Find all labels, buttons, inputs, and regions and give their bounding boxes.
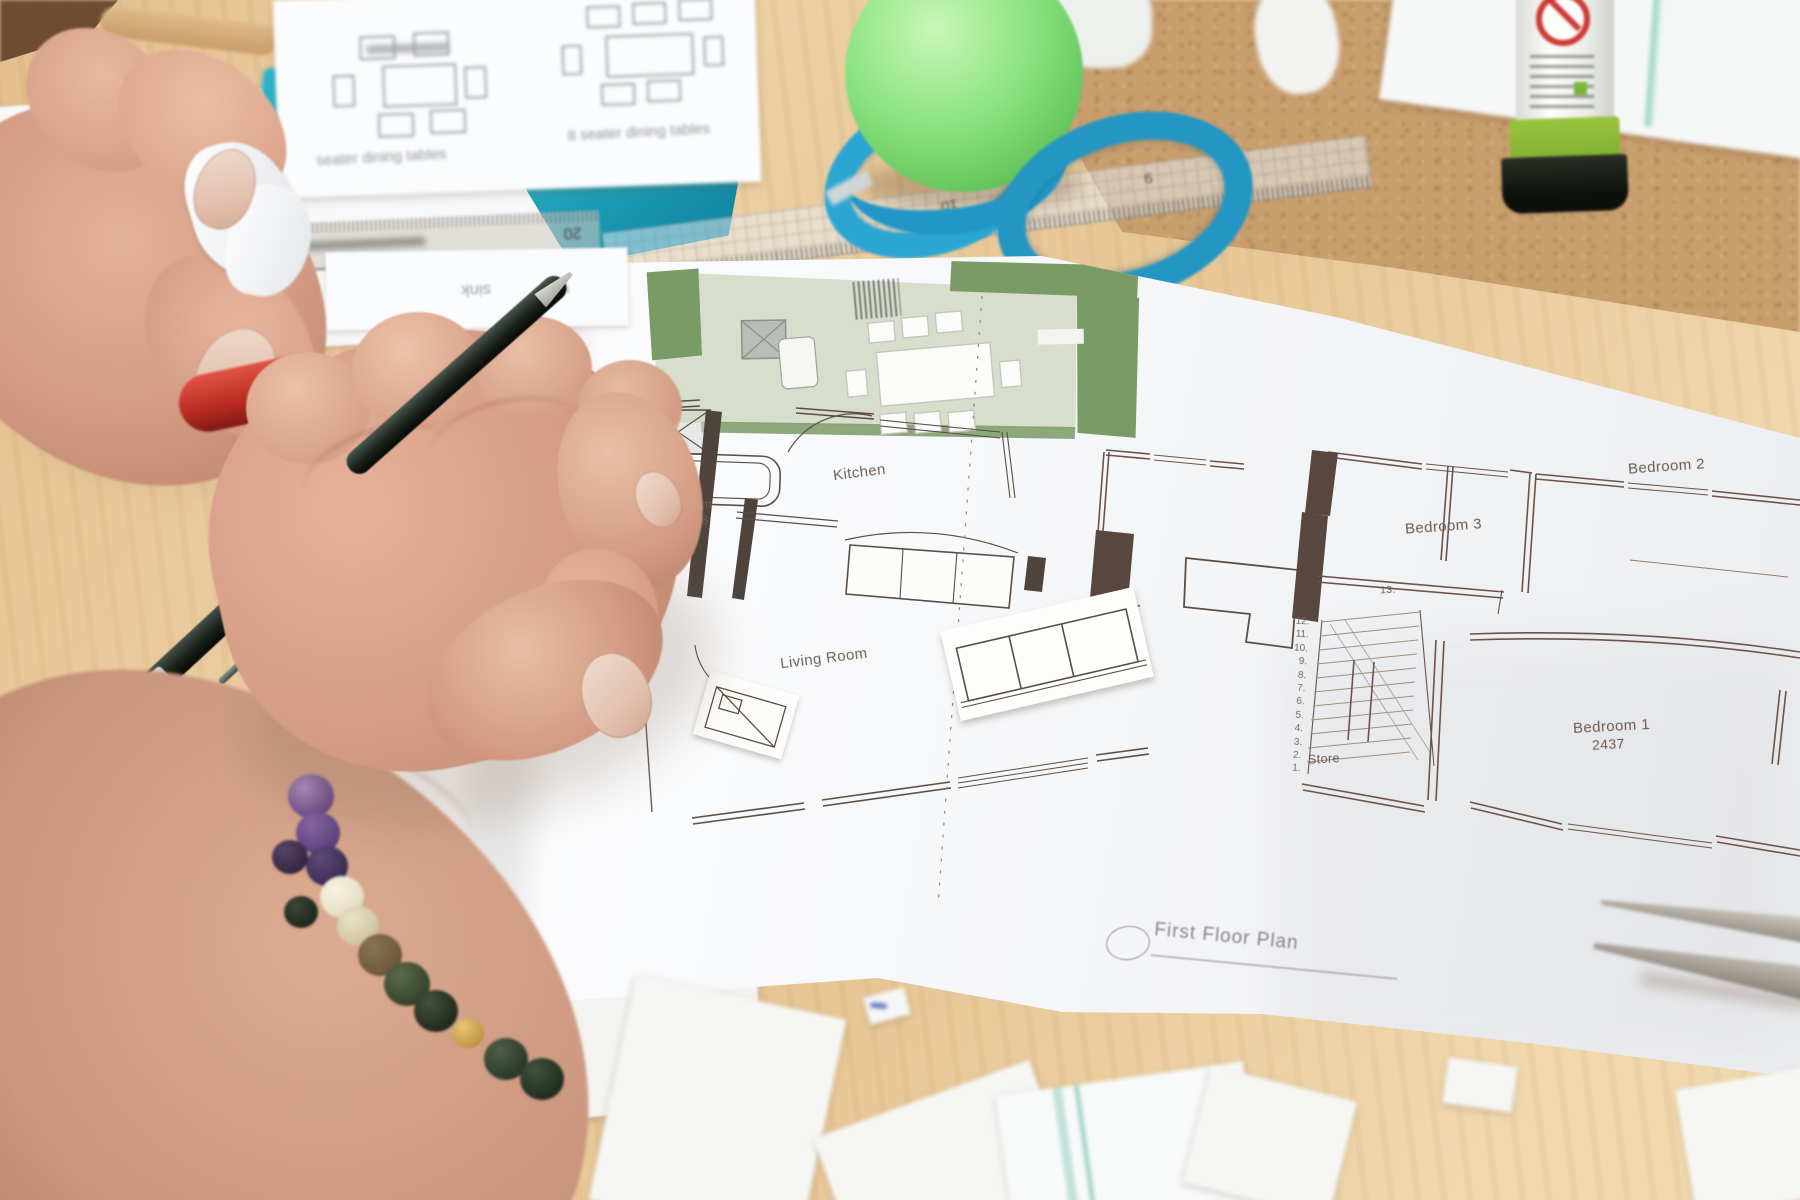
tweezers [1560, 890, 1800, 1030]
stair-number: 2. [1293, 749, 1302, 763]
glue-label-organic-square [1574, 82, 1587, 95]
tweezers-prong-top [1599, 889, 1800, 944]
paper-on-cork-2 [1645, 0, 1800, 143]
stair-number: 8. [1298, 668, 1307, 682]
bedroom1-number-label: 2437 [1592, 735, 1626, 753]
bead [272, 840, 308, 874]
stair-number: 10. [1294, 641, 1309, 655]
glue-label-text-lines [1530, 48, 1594, 108]
teal-stripe [1074, 1084, 1100, 1200]
glue-stick-cap [1501, 154, 1629, 214]
dining-table-diagram-right [541, 0, 755, 120]
stair-number: 3. [1293, 735, 1302, 749]
stair-number: 6. [1296, 695, 1305, 709]
stair-number: 9. [1298, 655, 1307, 669]
glue-stick [1496, 0, 1636, 220]
metal-ruler-number: 20 [563, 223, 582, 242]
bead-gold [452, 1018, 484, 1048]
stair-number: 5. [1295, 709, 1304, 723]
stair-number: 12. [1295, 615, 1310, 629]
store-label: Store [1308, 751, 1341, 767]
stair-number: 4. [1294, 722, 1303, 736]
tweezers-prong-bottom [1591, 929, 1800, 1000]
bead [284, 896, 318, 928]
sink-label: sink [461, 280, 492, 301]
bead [414, 990, 458, 1032]
photo-canvas: seater dining tables 8 seater dining tab… [0, 0, 1800, 1200]
stair-number-13: 13. [1380, 584, 1396, 597]
barcode-scale-block [852, 278, 901, 320]
bead [520, 1058, 564, 1100]
stair-number: 7. [1297, 682, 1306, 696]
paper-scrap [1442, 1057, 1518, 1112]
handout-caption-right: 8 seater dining tables [567, 120, 710, 144]
stair-number: 11. [1295, 628, 1309, 642]
blue-pen-mark [870, 1002, 886, 1008]
paper-scrap [1675, 1068, 1800, 1200]
stair-number: 1. [1292, 762, 1301, 776]
